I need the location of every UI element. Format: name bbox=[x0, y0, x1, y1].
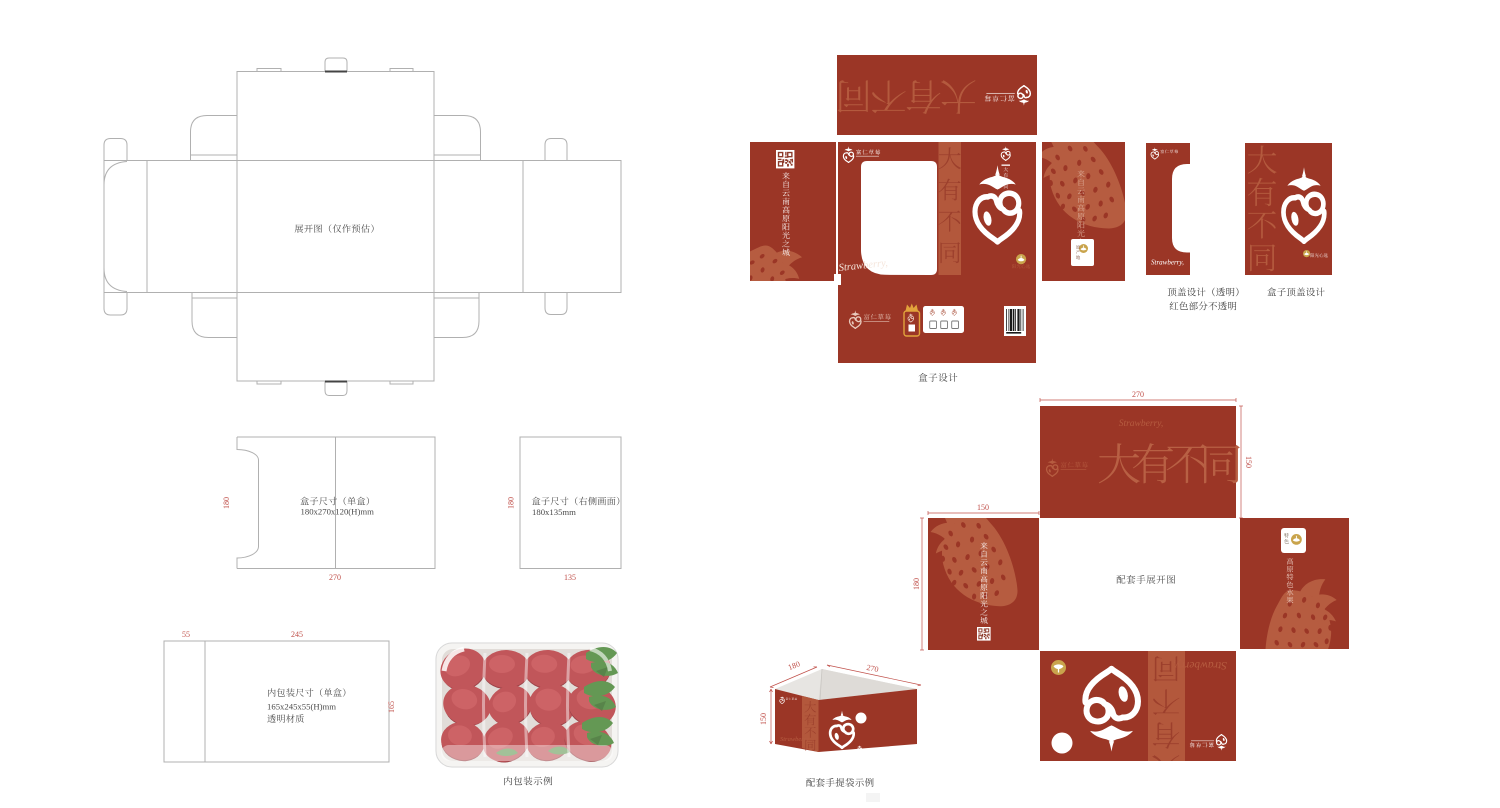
svg-text:180: 180 bbox=[222, 497, 231, 509]
svg-text:245: 245 bbox=[291, 630, 303, 639]
svg-text:270: 270 bbox=[329, 573, 341, 582]
svg-text:165x245x55(H)mm: 165x245x55(H)mm bbox=[267, 702, 336, 712]
svg-text:Strawberry,: Strawberry, bbox=[1173, 659, 1227, 671]
svg-text:150: 150 bbox=[1244, 456, 1253, 468]
svg-text:Strawberry,: Strawberry, bbox=[780, 736, 811, 743]
svg-text:150: 150 bbox=[977, 503, 989, 512]
svg-text:Strawberry,: Strawberry, bbox=[1151, 259, 1184, 267]
svg-text:180x135mm: 180x135mm bbox=[532, 507, 576, 517]
svg-text:Strawberry,: Strawberry, bbox=[1119, 419, 1164, 429]
svg-text:180: 180 bbox=[507, 497, 516, 509]
svg-text:180x270x120(H)mm: 180x270x120(H)mm bbox=[301, 507, 375, 517]
svg-text:180: 180 bbox=[912, 578, 921, 590]
svg-text:165: 165 bbox=[387, 701, 396, 713]
svg-text:135: 135 bbox=[564, 573, 576, 582]
svg-text:150: 150 bbox=[759, 713, 768, 725]
svg-text:55: 55 bbox=[182, 630, 190, 639]
svg-text:270: 270 bbox=[1132, 390, 1144, 399]
